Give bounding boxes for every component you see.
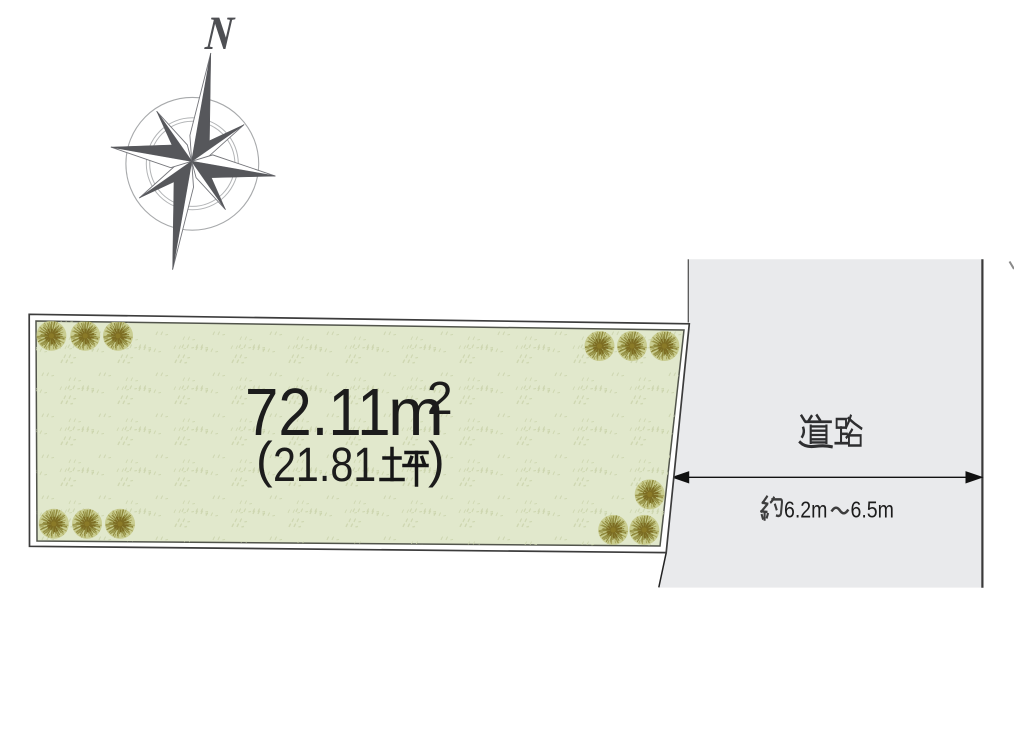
- svg-text:21.81: 21.81: [273, 438, 376, 492]
- svg-text:(: (: [256, 432, 273, 488]
- svg-text:N: N: [201, 7, 239, 60]
- svg-text:6.2m: 6.2m: [784, 497, 827, 523]
- svg-text:6.5m: 6.5m: [851, 497, 894, 523]
- svg-text:): ): [428, 432, 445, 488]
- svg-text:2: 2: [427, 372, 453, 424]
